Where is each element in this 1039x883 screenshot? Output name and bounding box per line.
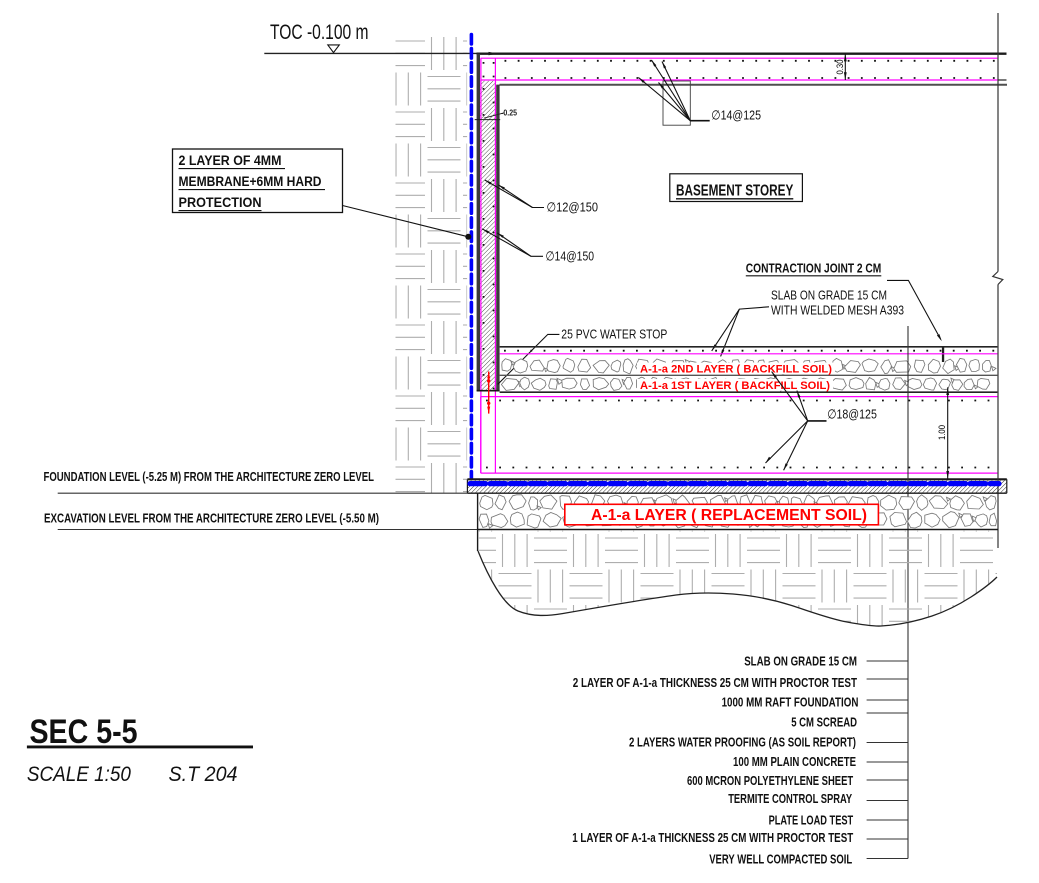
- svg-text:100 MM PLAIN CONCRETE: 100 MM PLAIN CONCRETE: [733, 754, 856, 769]
- svg-text:PLATE LOAD TEST: PLATE LOAD TEST: [769, 813, 854, 828]
- svg-text:∅14@125: ∅14@125: [711, 108, 761, 123]
- svg-text:FOUNDATION LEVEL (-5.25 M) FRO: FOUNDATION LEVEL (-5.25 M) FROM THE ARCH…: [44, 470, 375, 484]
- svg-text:CONTRACTION JOINT 2 CM: CONTRACTION JOINT 2 CM: [746, 260, 882, 275]
- svg-text:VERY WELL COMPACTED SOIL: VERY WELL COMPACTED SOIL: [709, 852, 852, 867]
- svg-text:600 MCRON POLYETHYLENE SHEET: 600 MCRON POLYETHYLENE SHEET: [687, 773, 853, 788]
- svg-text:MEMBRANE+6MM HARD: MEMBRANE+6MM HARD: [179, 174, 322, 189]
- svg-text:TOC -0.100 m: TOC -0.100 m: [270, 21, 369, 44]
- svg-text:25 PVC WATER STOP: 25 PVC WATER STOP: [561, 327, 667, 342]
- svg-text:∅12@150: ∅12@150: [547, 200, 599, 215]
- svg-text:S.T 204: S.T 204: [169, 763, 238, 786]
- svg-text:∅14@150: ∅14@150: [546, 249, 595, 264]
- svg-text:TERMITE CONTROL SPRAY: TERMITE CONTROL SPRAY: [728, 791, 852, 806]
- svg-text:0.30: 0.30: [835, 59, 845, 74]
- svg-text:1.00: 1.00: [937, 425, 947, 440]
- svg-text:SLAB ON GRADE 15 CM: SLAB ON GRADE 15 CM: [771, 288, 887, 303]
- svg-text:WITH WELDED MESH A393: WITH WELDED MESH A393: [771, 303, 904, 318]
- svg-text:1 LAYER OF A-1-a THICKNESS 25: 1 LAYER OF A-1-a THICKNESS 25 CM WITH PR…: [572, 830, 853, 845]
- svg-text:5 CM SCREAD: 5 CM SCREAD: [791, 715, 857, 730]
- svg-text:SCALE 1:50: SCALE 1:50: [27, 763, 131, 786]
- svg-text:2 LAYERS WATER PROOFING (AS SO: 2 LAYERS WATER PROOFING (AS SOIL REPORT): [629, 734, 856, 749]
- svg-text:BASEMENT STOREY: BASEMENT STOREY: [676, 183, 794, 200]
- svg-text:-0.25: -0.25: [501, 108, 517, 117]
- svg-text:A-1-a 2ND LAYER ( BACKFILL SOI: A-1-a 2ND LAYER ( BACKFILL SOIL): [640, 364, 832, 376]
- svg-text:A-1-a LAYER ( REPLACEMENT SOIL: A-1-a LAYER ( REPLACEMENT SOIL): [591, 507, 867, 524]
- svg-text:∅18@125: ∅18@125: [827, 406, 877, 421]
- svg-text:2 LAYER OF 4MM: 2 LAYER OF 4MM: [179, 153, 282, 168]
- svg-text:EXCAVATION LEVEL FROM THE ARC: EXCAVATION LEVEL FROM THE ARCHITECTURE Z…: [44, 511, 379, 525]
- svg-text:A-1-a 1ST LAYER ( BACKFILL SOI: A-1-a 1ST LAYER ( BACKFILL SOIL): [640, 380, 830, 392]
- svg-text:SLAB ON GRADE 15 CM: SLAB ON GRADE 15 CM: [744, 654, 857, 669]
- svg-text:1000 MM RAFT FOUNDATION: 1000 MM RAFT FOUNDATION: [722, 695, 859, 710]
- svg-text:2 LAYER OF A-1-a THICKNESS 25: 2 LAYER OF A-1-a THICKNESS 25 CM WITH PR…: [573, 675, 857, 690]
- svg-text:SEC 5-5: SEC 5-5: [30, 713, 138, 751]
- svg-text:PROTECTION: PROTECTION: [179, 195, 262, 210]
